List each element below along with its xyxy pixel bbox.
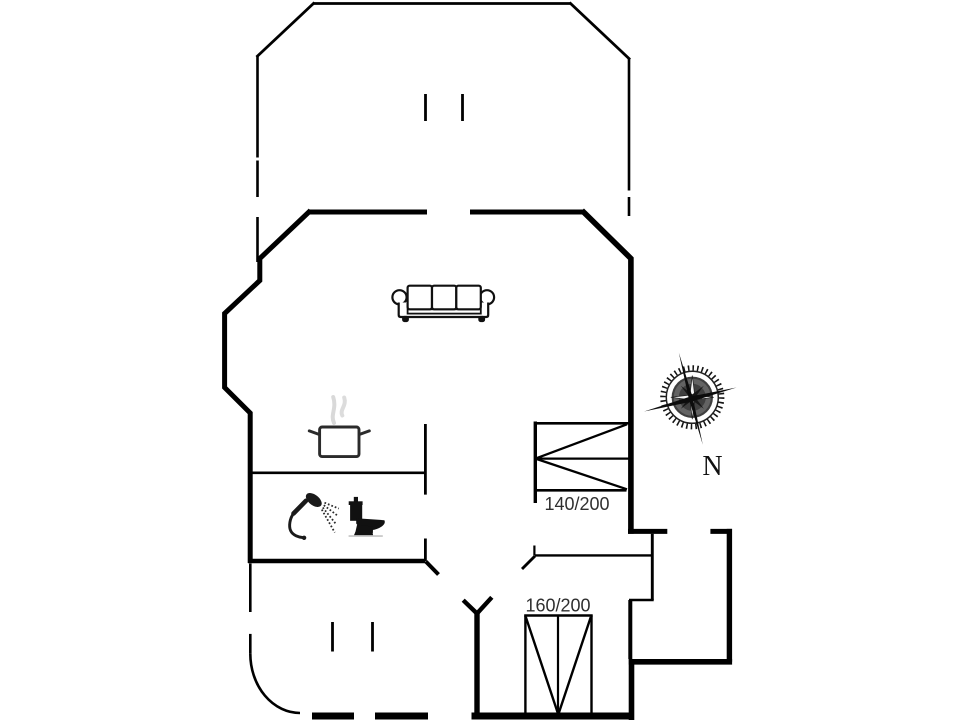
svg-text:N: N: [702, 451, 722, 482]
svg-text:160/200: 160/200: [525, 596, 590, 616]
svg-text:140/200: 140/200: [544, 494, 609, 514]
